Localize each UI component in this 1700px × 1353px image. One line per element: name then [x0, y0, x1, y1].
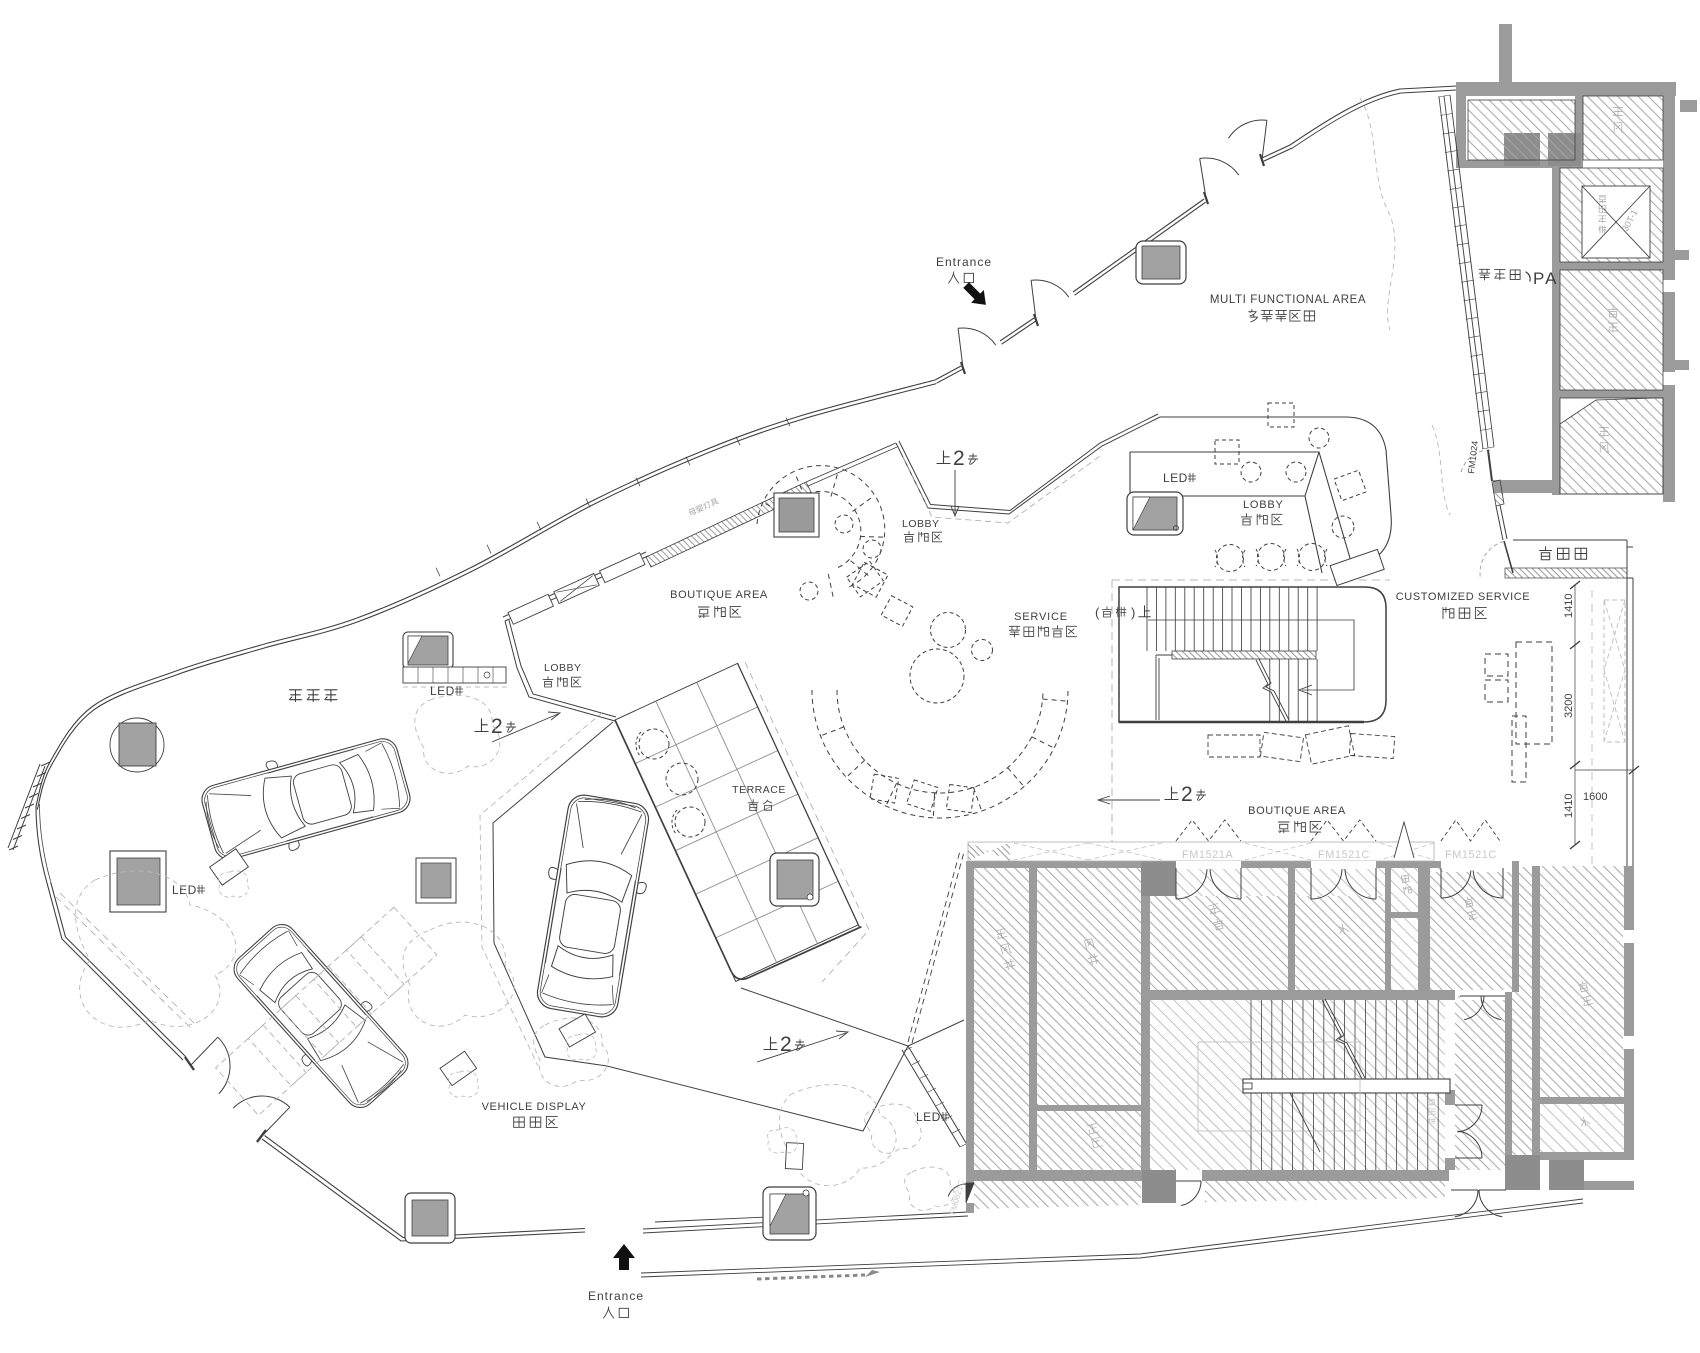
svg-text:3200: 3200: [1563, 694, 1575, 718]
svg-text:CUSTOMIZED SERVICE: CUSTOMIZED SERVICE: [1396, 591, 1530, 603]
svg-text:1410: 1410: [1563, 794, 1575, 818]
svg-text:FM1521C: FM1521C: [1445, 849, 1497, 861]
svg-text:1600: 1600: [1583, 791, 1607, 803]
svg-text:VEHICLE DISPLAY: VEHICLE DISPLAY: [482, 1101, 587, 1113]
svg-text:TERRACE: TERRACE: [732, 784, 786, 796]
svg-text:BOUTIQUE AREA: BOUTIQUE AREA: [670, 589, 768, 601]
svg-text:1410: 1410: [1563, 594, 1575, 618]
svg-text:2: 2: [491, 715, 503, 738]
svg-text:(: (: [1095, 605, 1100, 620]
svg-text:Entrance: Entrance: [936, 255, 992, 269]
svg-text:FM1521A: FM1521A: [1182, 849, 1233, 861]
svg-text:BOUTIQUE AREA: BOUTIQUE AREA: [1248, 805, 1346, 817]
svg-text:LOBBY: LOBBY: [1243, 499, 1284, 511]
svg-text:MULTI FUNCTIONAL AREA: MULTI FUNCTIONAL AREA: [1210, 294, 1366, 306]
svg-text:): ): [1131, 605, 1135, 620]
svg-text:LED: LED: [916, 1110, 941, 1124]
svg-text:LED: LED: [1163, 471, 1188, 485]
svg-text:SERVICE: SERVICE: [1014, 611, 1068, 623]
svg-text:LED: LED: [172, 883, 197, 897]
svg-text:PA: PA: [1533, 269, 1558, 288]
svg-text:LOBBY: LOBBY: [902, 518, 940, 530]
svg-text:LOBBY: LOBBY: [544, 662, 582, 674]
svg-text:FM1521C: FM1521C: [1318, 849, 1370, 861]
svg-text:Entrance: Entrance: [588, 1289, 644, 1303]
svg-text:2: 2: [1181, 783, 1193, 806]
svg-text:2: 2: [953, 447, 965, 470]
